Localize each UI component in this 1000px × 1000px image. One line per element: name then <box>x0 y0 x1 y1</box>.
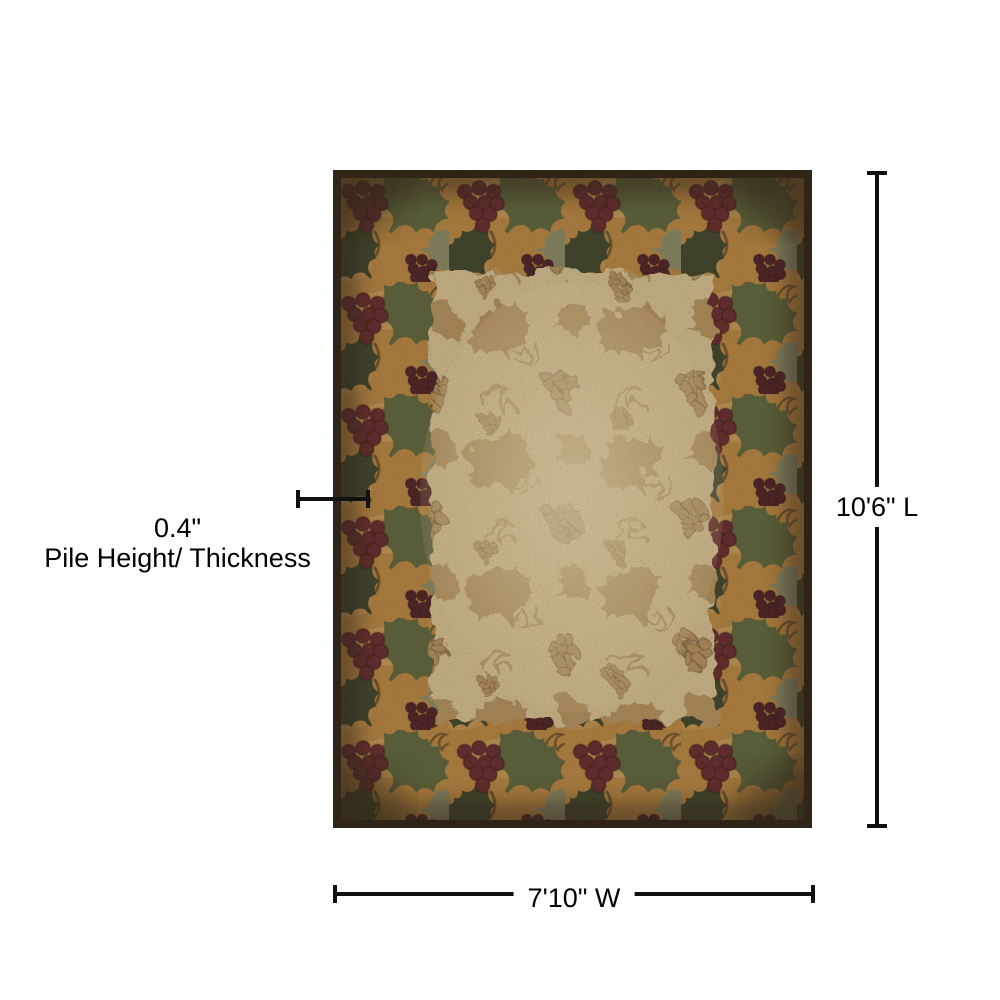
rug-texture-grain <box>333 170 812 828</box>
width-end-cap-right <box>811 885 815 903</box>
product-dimension-diagram: 0.4" Pile Height/ Thickness 10'6" L 7'10… <box>0 0 1000 1000</box>
length-dimension-label: 10'6" L <box>832 487 922 527</box>
pile-height-end-cap-left <box>296 490 300 508</box>
width-dimension-label: 7'10" W <box>514 883 635 913</box>
length-end-cap-top <box>867 171 887 175</box>
pile-height-marker <box>296 490 370 508</box>
pile-height-end-cap-right <box>366 490 370 508</box>
pile-height-label-block: 0.4" Pile Height/ Thickness <box>30 513 325 573</box>
length-end-cap-bottom <box>867 824 887 828</box>
pile-height-value: 0.4" <box>30 513 325 543</box>
width-end-cap-left <box>333 885 337 903</box>
pile-height-line <box>296 497 370 501</box>
rug-image <box>333 170 812 828</box>
pile-height-label: Pile Height/ Thickness <box>30 543 325 573</box>
rug-graphic <box>333 170 812 828</box>
